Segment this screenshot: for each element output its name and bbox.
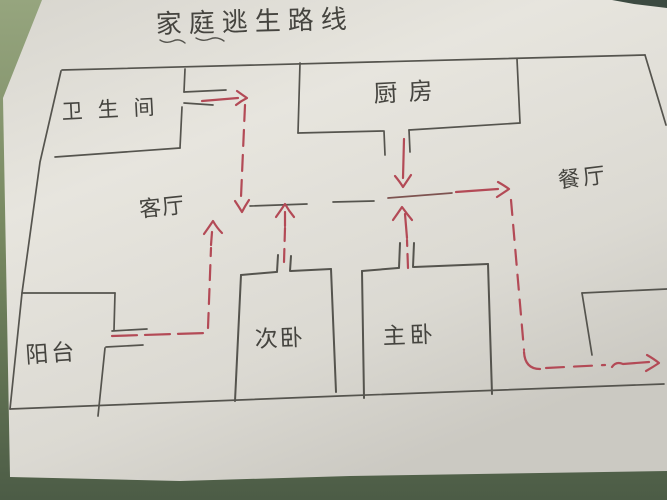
route-kitchen-line bbox=[403, 139, 404, 178]
plan-title: 家庭逃生路线 bbox=[155, 5, 354, 40]
room-label-kitchen: 厨房 bbox=[373, 76, 444, 108]
wall-second-bedroom-doorpost-left bbox=[277, 255, 278, 272]
room-label-living-room: 客厅 bbox=[138, 193, 186, 223]
wall-master-bedroom-doorpost-left bbox=[399, 243, 400, 268]
wall-kitchen-doorpost-left bbox=[384, 131, 385, 155]
route-master-bedroom-line bbox=[407, 240, 408, 268]
room-label-balcony: 阳台 bbox=[25, 339, 79, 369]
paper-sheet bbox=[3, 0, 667, 481]
photo-of-escape-plan: 家庭逃生路线 卫生间 厨房 客厅 餐厅 阳台 次卧 主卧 bbox=[0, 0, 667, 500]
escape-plan-canvas: 家庭逃生路线 卫生间 厨房 客厅 餐厅 阳台 次卧 主卧 bbox=[0, 0, 667, 500]
wall-kitchen-doorpost-right bbox=[409, 130, 410, 152]
room-label-second-bedroom: 次卧 bbox=[254, 325, 305, 353]
wall-hall-segment-b bbox=[333, 201, 374, 202]
wall-bathroom-right-stub bbox=[184, 69, 185, 92]
wall-master-bedroom-doorpost-right bbox=[413, 243, 414, 267]
room-label-master-bedroom: 主卧 bbox=[382, 322, 437, 350]
wall-balcony-right-upper bbox=[114, 293, 115, 330]
route-balcony-up2 bbox=[211, 232, 212, 245]
wall-second-bedroom-doorpost-right bbox=[290, 256, 291, 271]
